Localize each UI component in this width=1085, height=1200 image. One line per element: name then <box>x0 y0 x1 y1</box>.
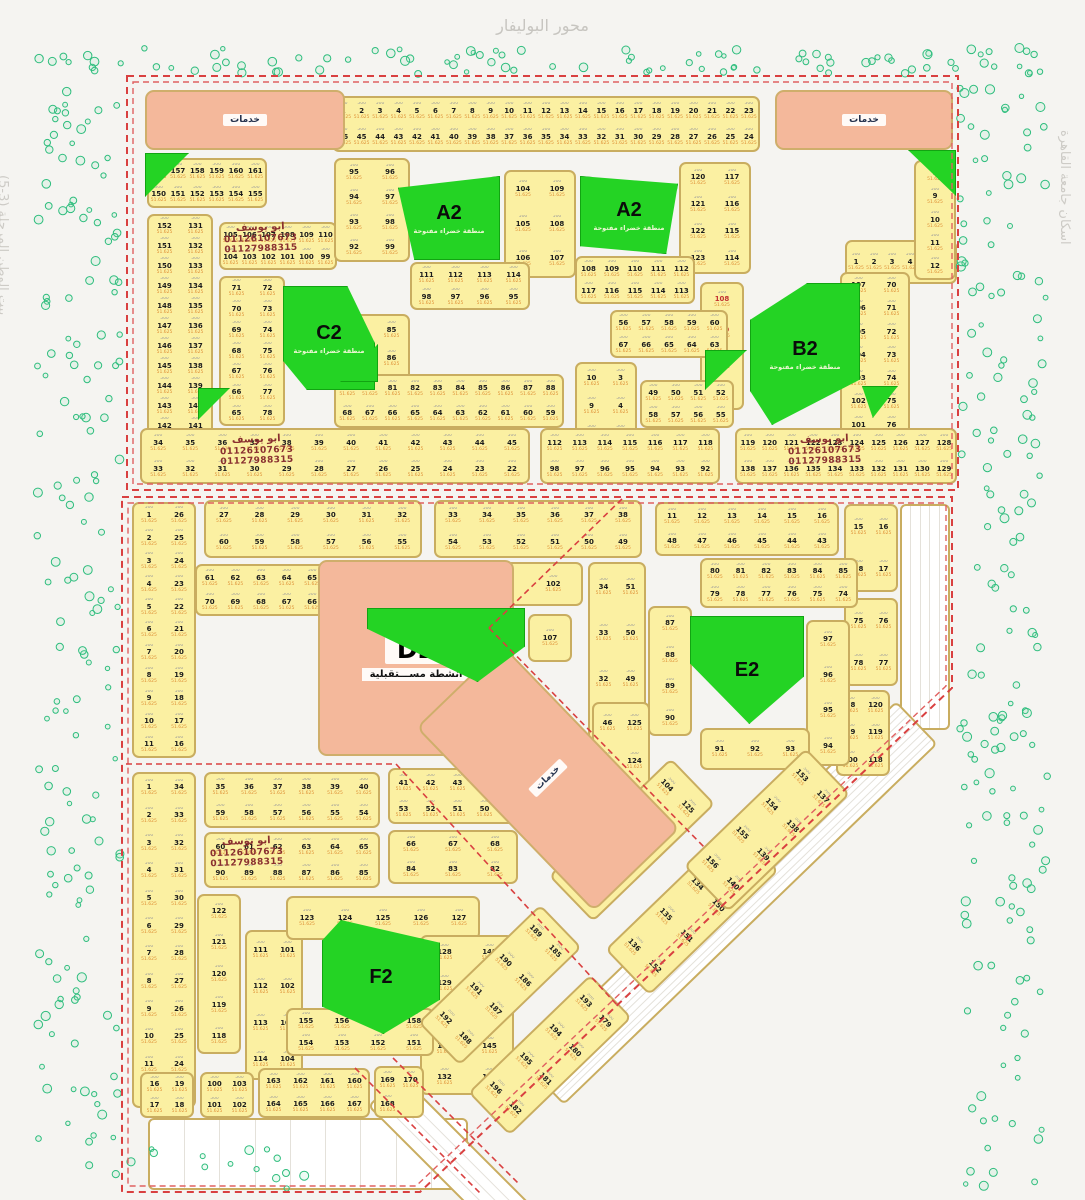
plot-code-value: 51.625 <box>232 1089 248 1094</box>
plot-number: 145 <box>482 1043 497 1050</box>
plot-number: 125 <box>871 440 886 447</box>
plot-number: 39 <box>467 134 477 141</box>
plot-number: 88 <box>546 385 556 392</box>
plot-number: 55 <box>397 539 407 546</box>
plot-number: 5 <box>147 604 152 611</box>
tree-icon <box>962 784 968 790</box>
plot-code-value: 51.625 <box>876 532 892 537</box>
plot-cell: 5009951.625 <box>372 239 408 257</box>
plot-cell: 500951.625 <box>134 1000 164 1018</box>
plot-cell: 50014651.625 <box>149 337 180 355</box>
plot-number: 164 <box>266 1101 281 1108</box>
plot-cell: 50012051.625 <box>759 434 781 452</box>
tree-icon <box>972 756 978 762</box>
plot-code-value: 51.625 <box>613 411 629 416</box>
plot-row: 50010551.62550010851.625 <box>506 207 574 242</box>
plot-row: 5001051.625500351.625 <box>577 364 635 392</box>
tree-icon <box>989 713 998 722</box>
plot-number: 136 <box>188 323 203 330</box>
plot-area-value: 500 <box>486 102 495 107</box>
plot-row: 5005951.6255005851.6255005751.6255005651… <box>206 800 378 826</box>
plot-cell: 50012551.625 <box>868 434 890 452</box>
plot-area-value: 500 <box>216 778 225 783</box>
plot-code-value: 51.625 <box>270 878 286 883</box>
plot-number: 37 <box>504 134 514 141</box>
tree-icon <box>191 67 198 74</box>
plot-cell: 5005851.625 <box>235 804 264 822</box>
plot-code-value: 51.625 <box>359 547 375 552</box>
plot-row: 50011751.62550011651.62550011551.6255001… <box>577 280 693 302</box>
plot-row: 50010151.62550010251.625 <box>202 1095 252 1116</box>
plot-code-value: 51.625 <box>784 576 800 581</box>
plot-cell: 50013151.625 <box>180 217 211 235</box>
plot-row: 50014551.62550013851.625 <box>149 356 211 376</box>
plot-code-value: 51.625 <box>445 547 461 552</box>
plot-number: 160 <box>347 1078 362 1085</box>
plot-cell: 5004251.625 <box>408 128 426 146</box>
plot-cell: 50011851.625 <box>863 751 888 769</box>
plot-cell: 5004051.625 <box>349 778 378 796</box>
broker-watermark: ابو يوسف0112610767301127988315 <box>219 433 293 468</box>
plot-number: 94 <box>823 743 833 750</box>
plot-cell: 5001551.625 <box>846 518 871 536</box>
tree-icon <box>1038 360 1046 368</box>
plot-number: 95 <box>349 169 359 176</box>
plot-number: 77 <box>761 591 771 598</box>
plot-number: 86 <box>501 385 511 392</box>
tree-icon <box>71 1040 78 1047</box>
plot-code-value: 51.625 <box>403 1085 419 1090</box>
tree-icon <box>66 336 71 341</box>
plot-code-value: 51.625 <box>406 1026 422 1031</box>
plot-row: 5003351.6255003451.6255003551.6255003651… <box>436 502 640 529</box>
tree-icon <box>957 114 965 122</box>
empty-plot-cell <box>910 506 919 728</box>
plot-area-value: 500 <box>642 336 651 341</box>
plot-area-value: 500 <box>918 460 927 465</box>
plot-cell: 5006051.625 <box>517 405 540 423</box>
plot-code-value: 51.625 <box>171 931 187 936</box>
plot-cell: 5002951.625 <box>647 128 665 146</box>
tree-icon <box>1030 415 1035 420</box>
plot-number: 13 <box>560 108 570 115</box>
plot-area-value: 500 <box>631 282 640 287</box>
plot-code-value: 51.625 <box>805 474 821 479</box>
plot-number: 67 <box>619 342 629 349</box>
plot-code-value: 51.625 <box>581 520 597 525</box>
tree-icon <box>1002 107 1007 112</box>
plot-row: 5009551.6255009651.625 <box>336 160 408 185</box>
tree-icon <box>998 711 1006 719</box>
plot-area-value: 500 <box>450 102 459 107</box>
plot-code-value: 51.625 <box>171 634 187 639</box>
plot-area-value: 500 <box>599 670 608 675</box>
plot-code-value: 51.625 <box>543 393 559 398</box>
plot-cell: 500651.625 <box>426 102 444 120</box>
tree-icon <box>84 936 89 941</box>
plot-cell: 5003651.625 <box>538 507 572 525</box>
tree-icon <box>974 565 980 571</box>
tree-icon <box>45 716 50 721</box>
plot-number: 10 <box>930 217 940 224</box>
plot-number: 133 <box>188 263 203 270</box>
plot-cell: 5009651.625 <box>592 460 617 478</box>
plot-code-value: 51.625 <box>733 576 749 581</box>
plot-number: 118 <box>698 440 713 447</box>
plot-code-value: 51.625 <box>356 818 372 823</box>
plot-cell: 5008651.625 <box>494 380 517 398</box>
plot-row: 5009451.6255009751.625 <box>336 185 408 210</box>
plot-number: 117 <box>725 174 740 181</box>
plot-code-value: 51.625 <box>334 1026 350 1031</box>
plot-area-value: 500 <box>374 1034 383 1039</box>
green-area-arabic-label: منطقة خضراء مفتوحة <box>414 227 485 235</box>
plot-code-value: 51.625 <box>311 474 327 479</box>
plot-area-value: 500 <box>206 593 215 598</box>
plot-cell: 5007451.625 <box>252 321 283 339</box>
plot-number: 64 <box>330 844 340 851</box>
plot-cell: 5002351.625 <box>464 460 496 478</box>
tree-icon <box>1035 278 1042 285</box>
plot-code-value: 51.625 <box>820 680 836 685</box>
plot-number: 35 <box>516 512 526 519</box>
plot-code-value: 51.625 <box>448 280 464 285</box>
plot-cell: 5005851.625 <box>277 534 313 552</box>
tree-icon <box>111 1135 116 1140</box>
plot-block: 5009751.6255009651.6255009551.6255009451… <box>806 620 850 766</box>
tree-icon <box>114 1025 120 1031</box>
plot-cell: 5004551.625 <box>352 128 370 146</box>
tree-icon <box>1009 1121 1015 1127</box>
plot-code-value: 51.625 <box>440 474 456 479</box>
plot-cell: 5005651.625 <box>687 406 710 424</box>
tree-icon <box>113 646 119 652</box>
plot-cell: 5007551.625 <box>805 586 831 604</box>
tree-icon <box>983 464 991 472</box>
plot-code-value: 51.625 <box>623 592 639 597</box>
plot-row: 5003251.6255004951.625 <box>590 656 644 702</box>
plot-number: 68 <box>490 841 500 848</box>
plot-cell: 50010951.625 <box>297 226 316 244</box>
plot-code-value: 51.625 <box>615 547 631 552</box>
plot-cell: 5003451.625 <box>590 578 617 596</box>
plot-number: 92 <box>349 244 359 251</box>
plot-row: 5003451.6255003551.6255003651.6255003751… <box>142 430 528 456</box>
plot-area-value: 500 <box>376 128 385 133</box>
plot-number: 36 <box>244 784 254 791</box>
plot-code-value: 51.625 <box>141 634 157 639</box>
plot-area-value: 500 <box>710 314 719 319</box>
plot-number: 35 <box>185 440 195 447</box>
plot-cell: 5002651.625 <box>703 128 721 146</box>
plot-area-value: 500 <box>399 800 408 805</box>
plot-number: 64 <box>433 410 443 417</box>
plot-cell: 50014751.625 <box>149 317 180 335</box>
tree-icon <box>48 350 56 358</box>
plot-code-value: 51.625 <box>327 792 343 797</box>
plot-area-value: 500 <box>509 266 518 271</box>
plot-code-value: 51.625 <box>820 644 836 649</box>
plot-code-value: 51.625 <box>298 1026 314 1031</box>
plot-cell: 5002651.625 <box>164 1000 194 1018</box>
plot-code-value: 51.625 <box>520 142 536 147</box>
plot-row: 5009251.6255009951.625 <box>336 235 408 260</box>
plot-area-value: 500 <box>160 217 169 222</box>
plot-row: 500951.6255001851.625 <box>134 687 194 710</box>
plot-number: 24 <box>443 466 453 473</box>
tree-icon <box>722 54 726 58</box>
plot-code-value: 51.625 <box>440 448 456 453</box>
plot-area-value: 500 <box>931 211 940 216</box>
plot-number: 11 <box>144 741 154 748</box>
plot-code-value: 51.625 <box>704 142 720 147</box>
plot-cell: 50016351.625 <box>260 1073 287 1091</box>
plot-code-value: 51.625 <box>384 363 400 368</box>
plot-cell: 50011651.625 <box>643 434 668 452</box>
plot-area-value: 500 <box>579 128 588 133</box>
plot-block: 50011251.62550011351.62550011451.6255001… <box>540 428 720 484</box>
plot-code-value: 51.625 <box>339 418 355 423</box>
tree-icon <box>957 726 963 732</box>
plot-cell: 5005251.625 <box>710 384 733 402</box>
plot-number: 112 <box>547 440 562 447</box>
plot-number: 75 <box>813 591 823 598</box>
plot-number: 112 <box>674 266 689 273</box>
plot-number: 2 <box>359 108 364 115</box>
plot-area-value: 500 <box>160 417 169 422</box>
tree-icon <box>99 529 105 535</box>
tree-icon <box>62 87 70 95</box>
tree-icon <box>974 961 983 970</box>
plot-area-value: 500 <box>550 460 559 465</box>
plot-code-value: 51.625 <box>423 814 439 819</box>
plot-number: 84 <box>455 385 465 392</box>
tree-icon <box>985 524 991 530</box>
tree-icon <box>64 709 69 714</box>
plot-number: 4 <box>908 259 913 266</box>
plot-row: 500251.6255002551.625 <box>134 527 194 550</box>
plot-cell: 50011251.625 <box>542 434 567 452</box>
tree-icon <box>46 818 54 826</box>
plot-code-value: 51.625 <box>212 792 228 797</box>
plot-cell: 5008851.625 <box>539 380 562 398</box>
plot-cell: 50012751.625 <box>440 909 478 927</box>
green-area-E2: E2 <box>690 616 804 724</box>
tree-icon <box>53 975 61 983</box>
tree-icon <box>34 1020 43 1029</box>
plot-code-value: 51.625 <box>157 411 173 416</box>
plot-area-value: 500 <box>615 102 624 107</box>
plot-cell: 5003651.625 <box>518 128 536 146</box>
plot-number: 46 <box>727 538 737 545</box>
plot-number: 70 <box>232 306 242 313</box>
plot-cell: 50013251.625 <box>422 1068 467 1086</box>
plot-area-value: 500 <box>145 598 154 603</box>
plot-cell: 5008751.625 <box>650 615 690 633</box>
plot-code-value: 51.625 <box>477 814 493 819</box>
plot-area-value: 500 <box>338 1034 347 1039</box>
plot-code-value: 51.625 <box>207 1089 223 1094</box>
plot-number: 100 <box>299 254 314 261</box>
plot-code-value: 51.625 <box>407 393 423 398</box>
plot-cell: 500151.625 <box>134 506 164 524</box>
plot-cell: 5001751.625 <box>142 1097 167 1115</box>
plot-code-value: 51.625 <box>266 1109 282 1114</box>
plot-area-value: 500 <box>341 909 350 914</box>
plot-cell: 5009251.625 <box>336 239 372 257</box>
plot-code-value: 51.625 <box>188 271 204 276</box>
tree-icon <box>112 213 117 218</box>
plot-code-value: 51.625 <box>616 350 632 355</box>
tree-icon <box>1034 1135 1043 1144</box>
tree-icon <box>1029 379 1038 388</box>
plot-code-value: 51.625 <box>253 1028 269 1033</box>
plot-number: 43 <box>443 440 453 447</box>
plot-number: 55 <box>330 810 340 817</box>
plot-area-value: 500 <box>765 434 774 439</box>
plot-cell: 5008651.625 <box>321 864 350 882</box>
tree-icon <box>997 719 1002 724</box>
plot-area-value: 500 <box>626 460 635 465</box>
plot-number: 99 <box>321 254 331 261</box>
tree-icon <box>87 428 94 435</box>
plot-code-value: 51.625 <box>188 331 204 336</box>
plot-cell: 5003151.625 <box>611 128 629 146</box>
plot-area-value: 500 <box>359 804 368 809</box>
tree-icon <box>86 1138 93 1145</box>
plot-code-value: 51.625 <box>927 225 943 230</box>
plot-code-value: 51.625 <box>482 1051 498 1056</box>
plot-code-value: 51.625 <box>662 691 678 696</box>
plot-code-value: 51.625 <box>382 227 398 232</box>
plot-code-value: 51.625 <box>228 607 244 612</box>
plot-code-value: 51.625 <box>868 765 884 770</box>
plot-area-value: 500 <box>422 288 431 293</box>
plot-code-value: 51.625 <box>835 599 851 604</box>
plot-area-value: 500 <box>282 569 291 574</box>
plot-area-value: 500 <box>154 434 163 439</box>
plot-number: 5 <box>147 895 152 902</box>
plot-code-value: 51.625 <box>209 199 225 204</box>
plot-area-value: 500 <box>744 460 753 465</box>
plot-cell: 5004251.625 <box>417 774 444 792</box>
plot-code-value: 51.625 <box>157 271 173 276</box>
plot-block: 50016351.62550016251.62550016151.6255001… <box>258 1068 370 1118</box>
plot-code-value: 51.625 <box>408 474 424 479</box>
plot-code-value: 51.625 <box>740 448 756 453</box>
plot-cell: 5002051.625 <box>684 102 702 120</box>
plot-area-value: 500 <box>649 384 658 389</box>
plot-code-value: 51.625 <box>188 351 204 356</box>
tree-icon <box>59 154 67 162</box>
plot-number: 22 <box>726 108 736 115</box>
plot-number: 165 <box>293 1101 308 1108</box>
plot-block: 5009551.6255009651.6255009451.6255009751… <box>334 158 410 262</box>
plot-block: 500151.625500251.625500351.625500451.625… <box>332 96 760 152</box>
plot-area-value: 500 <box>321 248 330 253</box>
tree-icon <box>986 191 991 196</box>
plot-code-value: 51.625 <box>150 448 166 453</box>
plot-area-value: 500 <box>630 714 639 719</box>
plot-cell: 5003251.625 <box>384 507 420 525</box>
plot-code-value: 51.625 <box>515 229 531 234</box>
plot-area-value: 500 <box>505 102 514 107</box>
tree-icon <box>1039 866 1046 873</box>
plot-code-value: 51.625 <box>394 520 410 525</box>
plot-number: 119 <box>741 440 756 447</box>
plot-area-value: 500 <box>701 460 710 465</box>
plot-code-value: 51.625 <box>758 599 774 604</box>
plot-block: 5007151.6255007251.6255007051.6255007351… <box>219 276 285 426</box>
plot-number: 85 <box>838 568 848 575</box>
plot-area-value: 500 <box>626 578 635 583</box>
plot-area-value: 500 <box>694 384 703 389</box>
plot-cell: 5007251.625 <box>252 279 283 297</box>
plot-code-value: 51.625 <box>762 474 778 479</box>
plot-area-value: 500 <box>215 965 224 970</box>
tree-icon <box>825 54 831 60</box>
plot-row: 5001051.6255002551.625 <box>134 1023 194 1051</box>
plot-area-value: 500 <box>160 257 169 262</box>
tree-icon <box>401 56 410 65</box>
tree-icon <box>81 1087 90 1096</box>
tree-icon <box>66 501 73 508</box>
plot-code-value: 51.625 <box>704 116 720 121</box>
plot-area-value: 500 <box>694 406 703 411</box>
plot-cell: 50015151.625 <box>168 186 187 204</box>
plot-number: 45 <box>507 440 517 447</box>
plot-code-value: 51.625 <box>448 302 464 307</box>
plot-number: 22 <box>507 466 517 473</box>
tree-icon <box>238 62 246 70</box>
plot-cell: 5006451.625 <box>426 405 449 423</box>
plot-area-value: 500 <box>508 434 517 439</box>
plot-area-value: 500 <box>331 778 340 783</box>
tree-icon <box>1017 64 1022 69</box>
plot-row: 5008851.625 <box>650 640 690 672</box>
plot-cell: 5006151.625 <box>494 405 517 423</box>
plot-area-value: 500 <box>302 248 311 253</box>
tree-icon <box>45 579 51 585</box>
plot-number: 131 <box>893 466 908 473</box>
plot-code-value: 51.625 <box>622 474 638 479</box>
plot-row: 50015051.62550013351.625 <box>149 256 211 276</box>
plot-cell: 500251.625 <box>352 102 370 120</box>
plot-code-value: 51.625 <box>698 448 714 453</box>
plot-code-value: 51.625 <box>157 391 173 396</box>
plot-number: 120 <box>762 440 777 447</box>
tree-icon <box>971 858 976 863</box>
empty-plot-cell <box>184 1120 219 1188</box>
tree-icon <box>94 219 100 225</box>
tree-icon <box>1020 490 1028 498</box>
plot-number: 134 <box>188 283 203 290</box>
tree-icon <box>1033 633 1038 638</box>
tree-icon <box>875 55 880 60</box>
plot-code-value: 51.625 <box>171 703 187 708</box>
plot-area-value: 500 <box>744 434 753 439</box>
plot-cell: 5001151.625 <box>657 508 687 526</box>
plot-number: 22 <box>174 604 184 611</box>
plot-area-value: 500 <box>671 102 680 107</box>
plot-number: 40 <box>346 440 356 447</box>
plot-number: 145 <box>157 363 172 370</box>
plot-code-value: 51.625 <box>261 262 277 267</box>
plot-code-value: 51.625 <box>627 296 643 301</box>
tree-icon <box>1016 977 1024 985</box>
plot-area-value: 500 <box>417 909 426 914</box>
plot-area-value: 500 <box>708 102 717 107</box>
